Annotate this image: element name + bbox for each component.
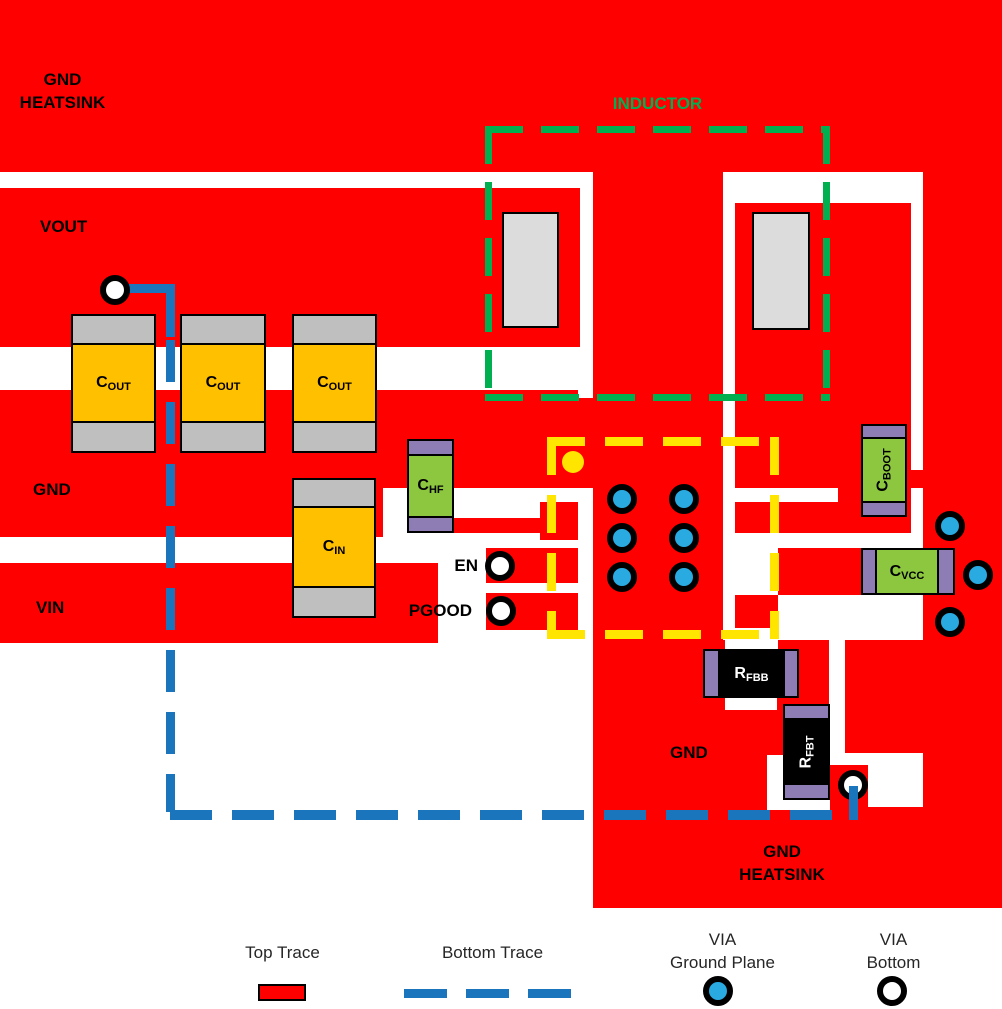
rfbb-cap-right (783, 649, 799, 698)
label-vout: VOUT (40, 217, 87, 237)
chf-pad-bottom (407, 516, 454, 533)
label-vin: VIN (36, 598, 64, 618)
label-gnd-right: GND (670, 743, 708, 763)
cin-label: CIN (323, 538, 346, 556)
label-gnd-heatsink-bottom: GND HEATSINK (706, 840, 858, 886)
clearance-below-rfbb (725, 697, 777, 710)
bottom-trace-via-stub (849, 786, 858, 820)
via-ground-icon (935, 511, 965, 541)
cout2-pad-top (180, 314, 266, 345)
legend-bottom-trace-label: Bottom Trace (415, 941, 570, 964)
pcb-layout-diagram: COUT COUT COUT CIN CHF CBOOT CVCC RFBB R… (0, 0, 1002, 1009)
clearance-left-of-rfbt (767, 755, 783, 799)
resistor-rfbb: RFBB (718, 649, 785, 698)
legend-via-bottom-line1: VIA (816, 928, 971, 951)
inductor-pad-left (502, 212, 559, 328)
capacitor-cout-3: COUT (292, 343, 377, 423)
inductor-outline-left (485, 126, 492, 401)
chf-label: CHF (417, 477, 443, 495)
cvcc-label: CVCC (890, 563, 925, 581)
clearance-right-of-via-pad (868, 765, 923, 807)
via-ground-icon (607, 562, 637, 592)
cout3-pad-top (292, 314, 377, 345)
label-inductor: INDUCTOR (545, 94, 770, 114)
inductor-pad-right (752, 212, 810, 330)
cout2-label: COUT (206, 374, 241, 392)
via-ground-icon (607, 484, 637, 514)
capacitor-cvcc: CVCC (875, 548, 939, 595)
cout1-pad-top (71, 314, 156, 345)
cout1-pad-bottom (71, 421, 156, 453)
capacitor-cout-1: COUT (71, 343, 156, 423)
via-ground-icon (935, 607, 965, 637)
capacitor-cin: CIN (292, 506, 376, 588)
inductor-outline-top (485, 126, 830, 133)
bottom-trace-dashed-horizontal (170, 810, 857, 820)
via-ground-icon (669, 523, 699, 553)
label-gnd-top-line2: HEATSINK (5, 91, 120, 114)
clearance-right-of-rfbt (829, 620, 845, 765)
via-ground-icon (607, 523, 637, 553)
copper-top-heatsink-plane (0, 0, 1002, 172)
legend-top-trace-swatch (258, 984, 306, 1001)
label-gnd-top-line1: GND (5, 68, 120, 91)
cout3-label: COUT (317, 374, 352, 392)
legend-via-bottom-label: VIA Bottom (816, 928, 971, 974)
clearance-right-inductor (911, 203, 923, 470)
via-bottom-icon (100, 275, 130, 305)
clearance-above-via-pad (845, 753, 923, 765)
label-gnd-bottom-line2: HEATSINK (706, 863, 858, 886)
inductor-outline-right (823, 126, 830, 401)
cout2-pad-bottom (180, 421, 266, 453)
legend-bottom-trace-swatch (404, 989, 572, 998)
cvcc-pad-right (937, 548, 955, 595)
bottom-trace-solid-vertical (166, 284, 175, 337)
via-bottom-icon (485, 551, 515, 581)
legend-via-bottom-icon (877, 976, 907, 1006)
cboot-pad-bottom (861, 501, 907, 517)
ic-outline-top (547, 437, 778, 446)
via-ground-icon (963, 560, 993, 590)
ic-outline-right (770, 437, 779, 639)
rfbt-cap-bottom (783, 783, 830, 800)
cin-pad-top (292, 478, 376, 508)
via-bottom-icon (486, 596, 516, 626)
legend-via-ground-icon (703, 976, 733, 1006)
legend-via-ground-line2: Ground Plane (645, 951, 800, 974)
rfbt-label: RFBT (797, 735, 815, 768)
cboot-label: CBOOT (875, 448, 893, 491)
legend-via-ground-label: VIA Ground Plane (645, 928, 800, 974)
label-gnd-bottom-line1: GND (706, 840, 858, 863)
capacitor-cboot: CBOOT (861, 437, 907, 503)
ic-outline-bottom (547, 630, 778, 639)
legend-via-bottom-line2: Bottom (816, 951, 971, 974)
cout1-label: COUT (96, 374, 131, 392)
bottom-trace-dashed-vertical (166, 340, 175, 812)
label-pgood: PGOOD (402, 601, 472, 621)
ic-pin1-dot (562, 451, 584, 473)
resistor-rfbt: RFBT (783, 718, 830, 785)
via-ground-icon (669, 562, 699, 592)
label-en: EN (438, 556, 478, 576)
legend-via-ground-line1: VIA (645, 928, 800, 951)
via-ground-icon (669, 484, 699, 514)
ic-outline-left (547, 437, 556, 639)
clearance-below-rfbt (767, 799, 830, 810)
inductor-outline-bottom (485, 394, 830, 401)
rfbb-label: RFBB (734, 665, 768, 683)
cout3-pad-bottom (292, 421, 377, 453)
capacitor-cout-2: COUT (180, 343, 266, 423)
legend-top-trace-label: Top Trace (205, 941, 360, 964)
label-gnd-heatsink-top: GND HEATSINK (5, 68, 120, 114)
capacitor-chf: CHF (407, 454, 454, 518)
cin-pad-bottom (292, 586, 376, 618)
copper-chf-trace (454, 518, 578, 533)
label-gnd-left: GND (33, 480, 71, 500)
